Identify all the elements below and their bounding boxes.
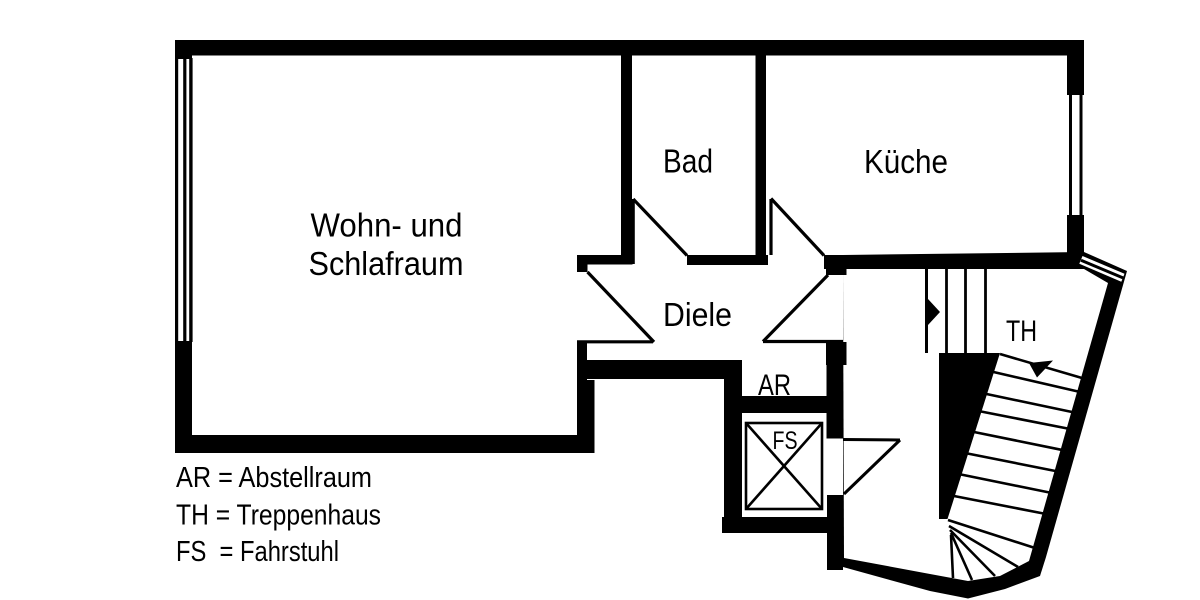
svg-text:AR: AR bbox=[758, 369, 791, 402]
svg-text:Küche: Küche bbox=[864, 143, 948, 180]
svg-text:FS: FS bbox=[773, 427, 798, 455]
svg-text:Bad: Bad bbox=[663, 143, 713, 180]
svg-text:Diele: Diele bbox=[663, 296, 732, 333]
svg-text:Schlafraum: Schlafraum bbox=[309, 245, 464, 282]
svg-text:FS = Fahrstuhl: FS = Fahrstuhl bbox=[176, 536, 339, 568]
svg-text:Wohn- und: Wohn- und bbox=[311, 207, 463, 244]
svg-text:AR = Abstellraum: AR = Abstellraum bbox=[176, 462, 372, 494]
svg-text:TH: TH bbox=[1006, 315, 1037, 348]
svg-text:TH = Treppenhaus: TH = Treppenhaus bbox=[176, 500, 381, 532]
